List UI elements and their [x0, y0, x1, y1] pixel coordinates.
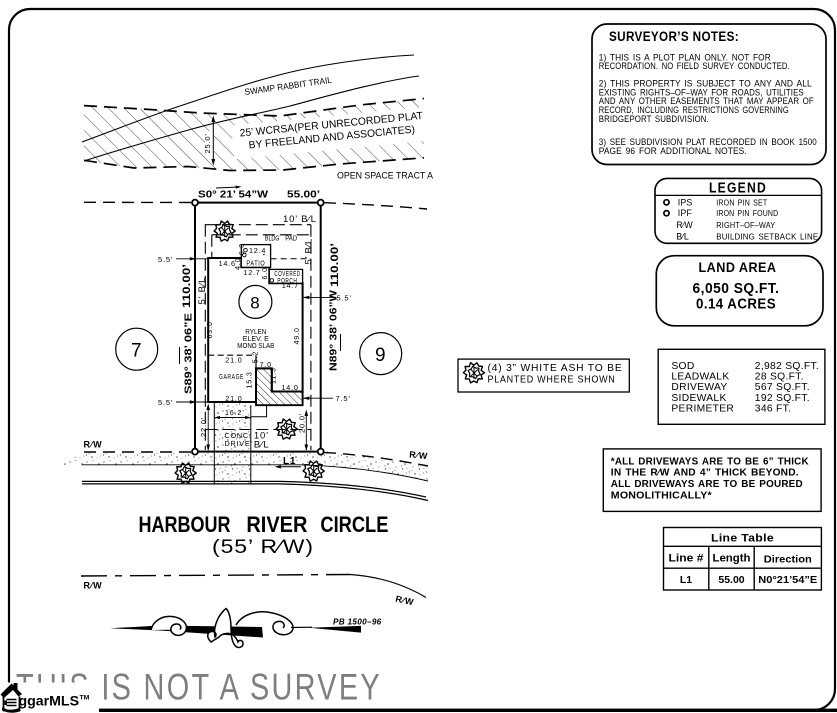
svg-text:PAGE 96 FOR ADDITIONAL NOTES.: PAGE 96 FOR ADDITIONAL NOTES. [599, 146, 747, 156]
svg-text:55.00: 55.00 [718, 574, 744, 586]
svg-text:B⁄L: B⁄L [676, 231, 689, 241]
svg-text:SOD: SOD [671, 361, 694, 372]
svg-text:4.0: 4.0 [233, 258, 242, 270]
svg-text:10’ B⁄L: 10’ B⁄L [283, 214, 317, 225]
svg-text:(55’ R⁄W): (55’ R⁄W) [212, 536, 314, 558]
svg-text:PB 1500–96: PB 1500–96 [333, 618, 382, 627]
svg-text:6.0: 6.0 [260, 267, 269, 279]
svg-text:IN THE R⁄W AND 4” THICK BEYOND: IN THE R⁄W AND 4” THICK BEYOND. [611, 468, 799, 479]
svg-text:PAD: PAD [285, 233, 297, 242]
svg-text:IRON PIN SET: IRON PIN SET [716, 197, 767, 207]
svg-text:R⁄W: R⁄W [395, 594, 416, 608]
svg-text:21.0: 21.0 [225, 356, 242, 365]
svg-text:14.0: 14.0 [282, 383, 299, 392]
svg-text:12.7: 12.7 [243, 268, 260, 277]
svg-text:55.00’: 55.00’ [287, 190, 320, 201]
svg-text:LEADWALK: LEADWALK [671, 372, 729, 383]
svg-text:S89° 38’ 06”E: S89° 38’ 06”E [184, 313, 195, 394]
svg-text:SIDEWALK: SIDEWALK [671, 393, 726, 404]
svg-text:110.00’: 110.00’ [181, 264, 193, 308]
svg-text:CIRCLE: CIRCLE [320, 512, 388, 537]
svg-text:6,050 SQ.FT.: 6,050 SQ.FT. [693, 281, 780, 297]
svg-text:110.00’: 110.00’ [329, 243, 341, 287]
svg-text:PATIO: PATIO [246, 259, 265, 268]
svg-text:8: 8 [250, 293, 260, 312]
svg-text:B⁄L: B⁄L [254, 440, 270, 451]
svg-text:S0° 21’ 54”W: S0° 21’ 54”W [198, 190, 269, 201]
svg-text:346 FT.: 346 FT. [755, 403, 791, 414]
svg-text:2,982 SQ.FT.: 2,982 SQ.FT. [755, 361, 819, 372]
svg-text:(4) 3” WHITE ASH TO BE: (4) 3” WHITE ASH TO BE [488, 363, 623, 374]
svg-text:25.0’: 25.0’ [203, 133, 212, 153]
svg-text:IPF: IPF [678, 208, 693, 218]
svg-text:7: 7 [131, 341, 142, 362]
svg-text:DRIVEWAY: DRIVEWAY [671, 382, 727, 393]
svg-text:R⁄W: R⁄W [676, 220, 693, 230]
svg-text:LAND AREA: LAND AREA [699, 260, 777, 275]
svg-text:OPEN SPACE TRACT A: OPEN SPACE TRACT A [337, 171, 433, 181]
svg-text:15.3: 15.3 [245, 371, 254, 388]
svg-text:21.0: 21.0 [225, 394, 242, 403]
svg-text:*ALL DRIVEWAYS ARE TO BE 6” TH: *ALL DRIVEWAYS ARE TO BE 6” THICK [611, 456, 809, 467]
svg-text:11.3: 11.3 [269, 367, 278, 384]
svg-text:RECORDATION. NO FIELD SURVEY C: RECORDATION. NO FIELD SURVEY CONDUCTED. [599, 61, 790, 71]
svg-text:5’ B⁄L: 5’ B⁄L [197, 277, 208, 305]
svg-text:Line Table: Line Table [711, 533, 774, 545]
svg-text:192 SQ.FT.: 192 SQ.FT. [755, 393, 810, 404]
svg-text:MONO SLAB: MONO SLAB [237, 341, 274, 350]
svg-text:28 SQ.FT.: 28 SQ.FT. [755, 372, 804, 383]
svg-text:Direction: Direction [764, 554, 812, 566]
svg-text:R⁄W: R⁄W [84, 440, 103, 450]
svg-text:SURVEYOR’S NOTES:: SURVEYOR’S NOTES: [609, 29, 739, 44]
svg-text:14.7: 14.7 [282, 281, 299, 290]
svg-text:PLANTED WHERE SHOWN: PLANTED WHERE SHOWN [488, 375, 616, 386]
svg-text:SWAMP RABBIT TRAIL: SWAMP RABBIT TRAIL [244, 75, 333, 97]
svg-text:BLDG: BLDG [265, 233, 280, 242]
svg-text:RIGHT–OF–WAY: RIGHT–OF–WAY [716, 220, 775, 230]
svg-text:BRIDGEPORT SUBDIVISION.: BRIDGEPORT SUBDIVISION. [599, 114, 709, 124]
svg-text:5.5’: 5.5’ [337, 293, 352, 302]
svg-text:LEGEND: LEGEND [709, 181, 767, 197]
svg-text:0.14 ACRES: 0.14 ACRES [696, 296, 776, 312]
svg-text:BUILDING SETBACK LINE: BUILDING SETBACK LINE [716, 231, 818, 241]
svg-text:5’: 5’ [304, 256, 315, 265]
svg-text:7.5’: 7.5’ [336, 394, 351, 403]
svg-text:B⁄L: B⁄L [304, 238, 315, 254]
svg-text:49.0: 49.0 [292, 327, 301, 344]
svg-text:5.2: 5.2 [251, 351, 260, 363]
svg-text:GARAGE: GARAGE [219, 372, 244, 381]
svg-text:N0°21’54”E: N0°21’54”E [758, 574, 817, 586]
svg-text:5.5’: 5.5’ [158, 398, 173, 407]
svg-text:DRIVE’: DRIVE’ [225, 439, 253, 448]
svg-text:HARBOUR: HARBOUR [139, 512, 231, 537]
svg-text:L1: L1 [680, 574, 692, 586]
svg-text:TM: TM [80, 695, 90, 702]
svg-text:22.0’: 22.0’ [199, 417, 208, 437]
svg-text:R⁄W: R⁄W [409, 449, 429, 461]
svg-text:Line #: Line # [669, 553, 704, 565]
svg-text:Length: Length [713, 553, 751, 565]
svg-text:L1: L1 [283, 456, 296, 467]
svg-text:PERIMETER: PERIMETER [671, 403, 734, 414]
svg-text:ALL DRIVEWAYS ARE TO BE POURED: ALL DRIVEWAYS ARE TO BE POURED [611, 479, 803, 490]
svg-text:63.0: 63.0 [205, 321, 214, 338]
svg-text:ggarMLS: ggarMLS [19, 693, 80, 709]
svg-text:R⁄W: R⁄W [84, 581, 103, 591]
svg-text:IRON PIN FOUND: IRON PIN FOUND [716, 208, 778, 218]
svg-text:IPS: IPS [678, 197, 693, 207]
svg-text:5.5’: 5.5’ [158, 255, 173, 264]
svg-text:12.4: 12.4 [249, 246, 266, 255]
svg-text:MONOLITHICALLY*: MONOLITHICALLY* [611, 490, 712, 501]
svg-text:RIVER: RIVER [246, 512, 307, 537]
svg-text:6.0: 6.0 [237, 243, 246, 255]
svg-text:567 SQ.FT.: 567 SQ.FT. [755, 382, 810, 393]
svg-text:9: 9 [375, 345, 386, 366]
